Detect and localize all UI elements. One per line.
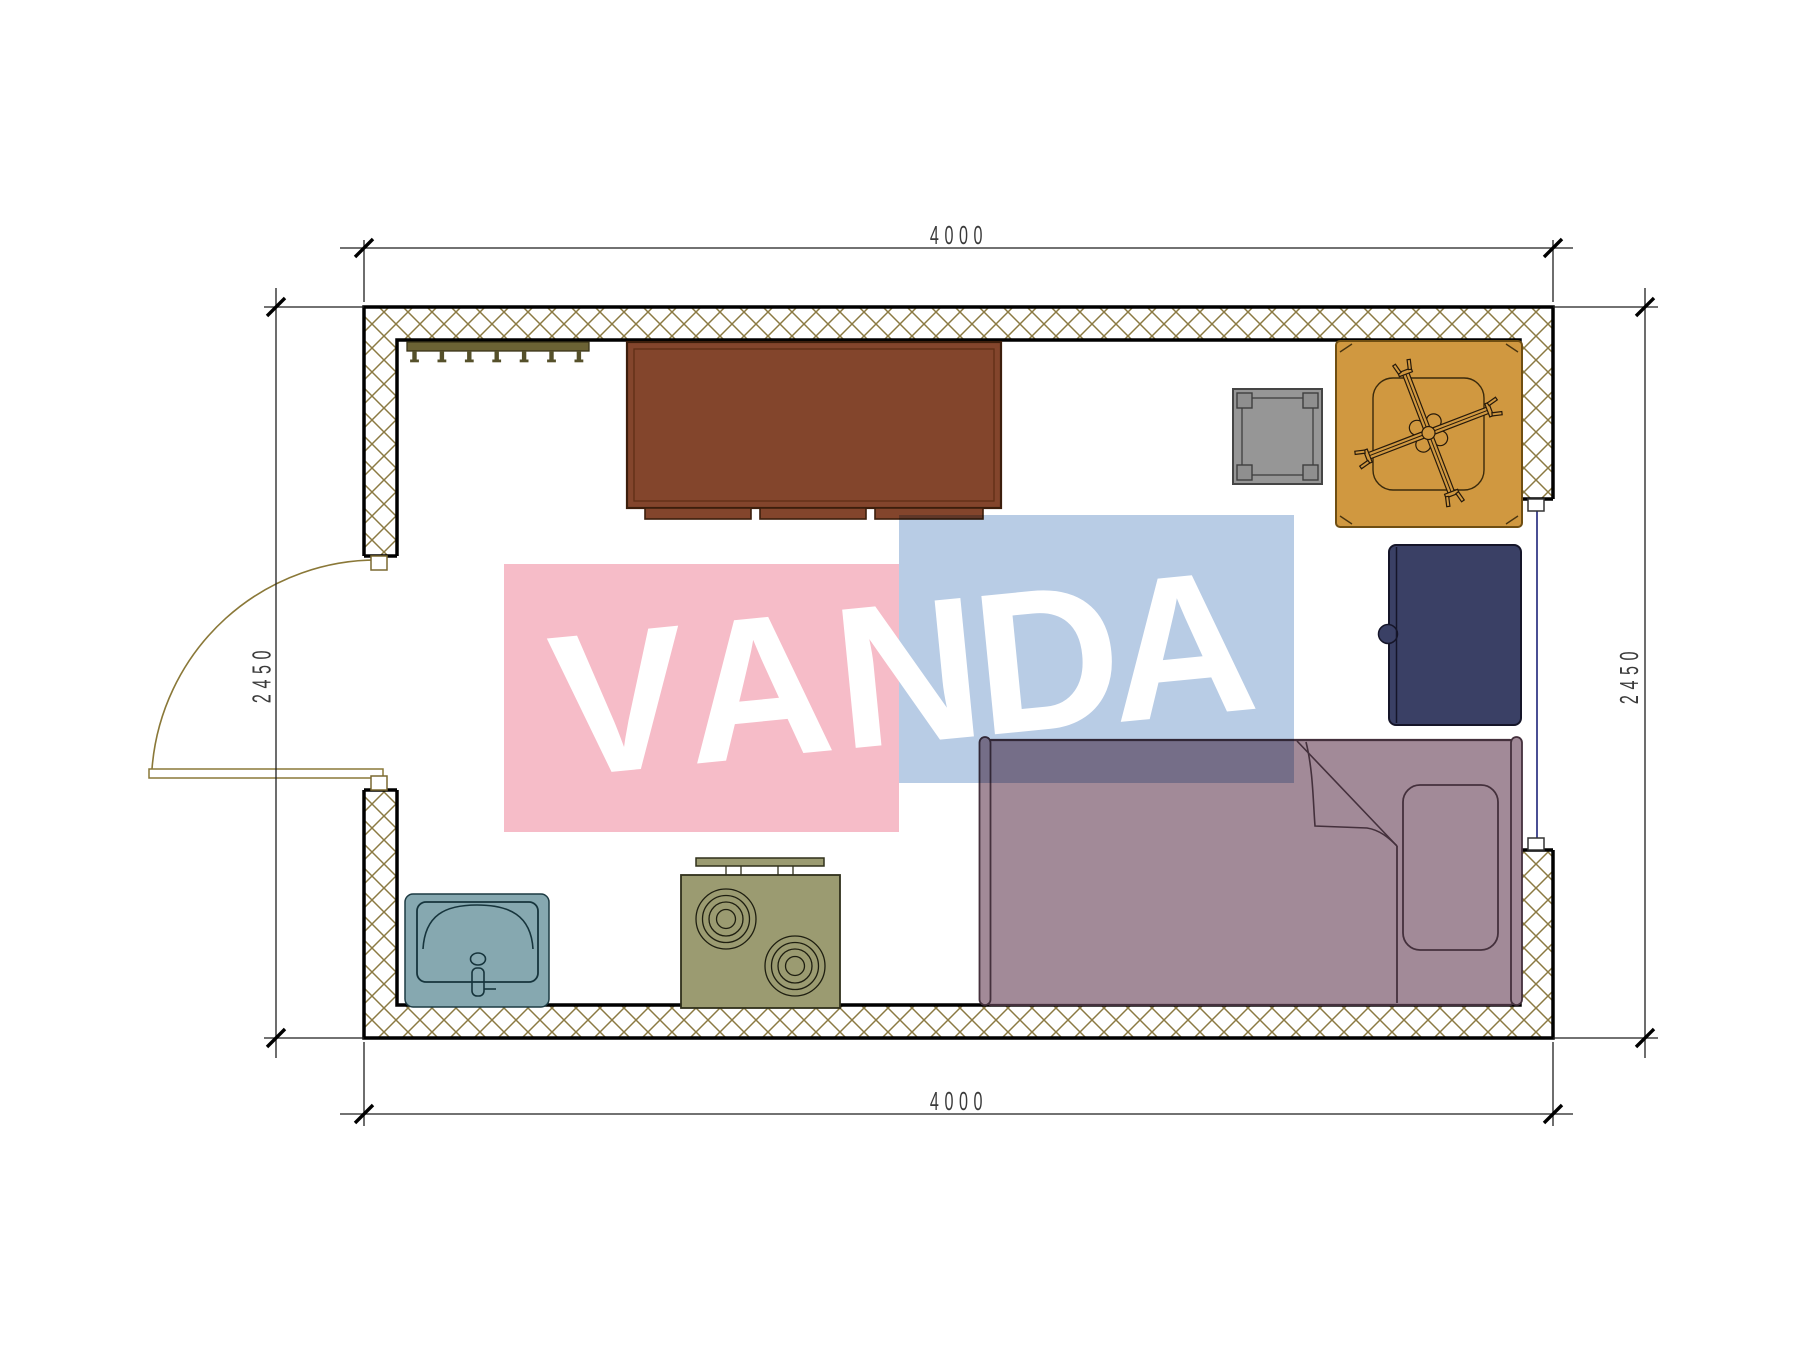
svg-text:2450: 2450 — [1614, 646, 1644, 704]
svg-text:2450: 2450 — [246, 645, 276, 703]
svg-text:4000: 4000 — [930, 220, 988, 250]
svg-text:4000: 4000 — [930, 1086, 988, 1116]
